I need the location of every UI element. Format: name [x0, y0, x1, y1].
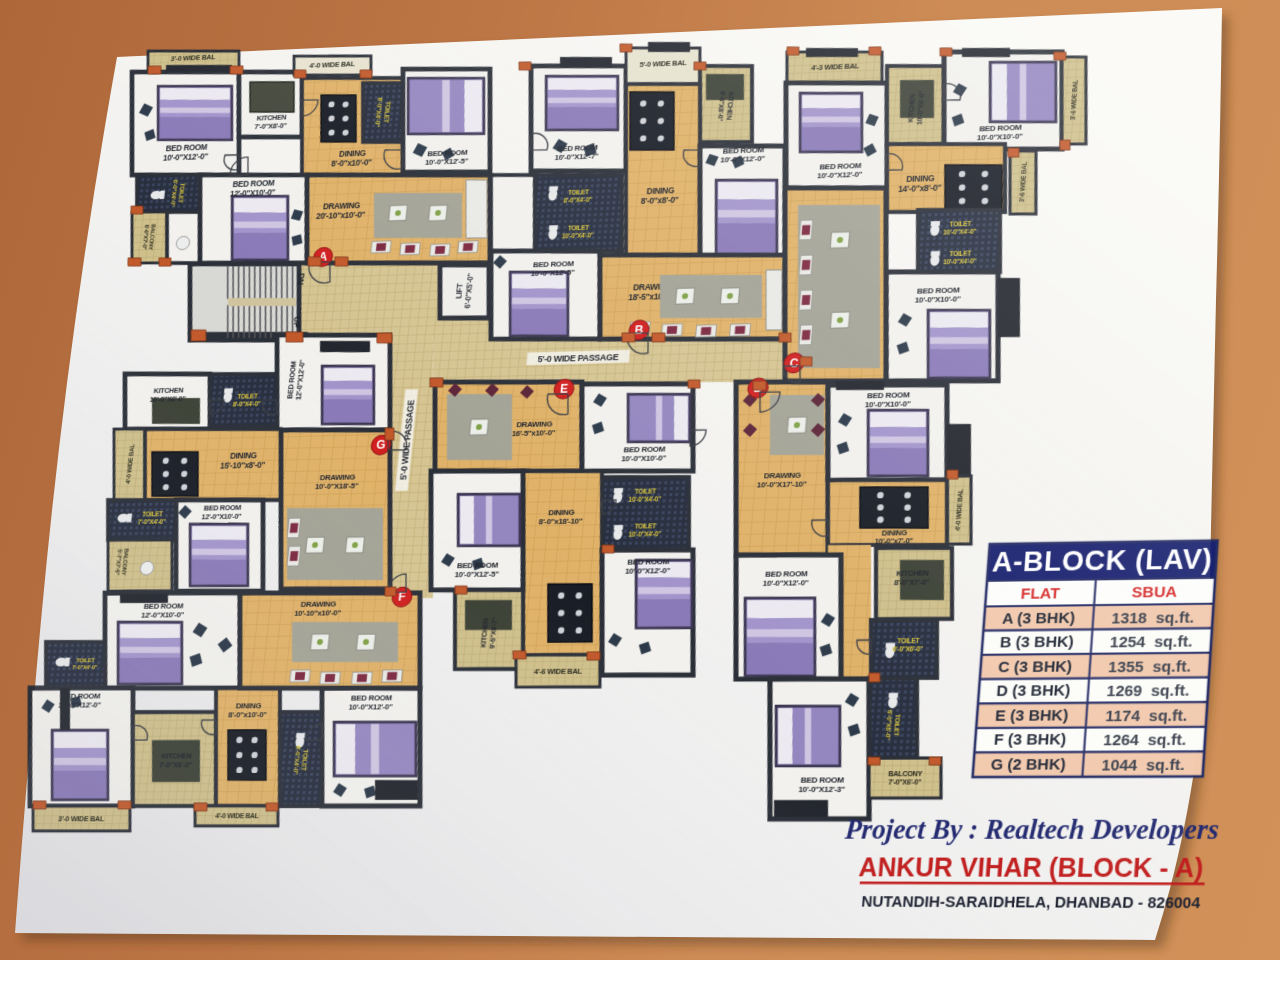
svg-text:8'-0"X7'-0": 8'-0"X7'-0" [894, 579, 930, 587]
svg-text:8'-0"x8'-0": 8'-0"x8'-0" [640, 196, 679, 207]
svg-text:D (3 BHK): D (3 BHK) [996, 681, 1071, 700]
svg-text:SBUA: SBUA [1131, 582, 1177, 601]
svg-text:7'-0"X4'-0": 7'-0"X4'-0" [137, 520, 166, 527]
svg-text:TOILET: TOILET [568, 190, 590, 197]
svg-text:10'-0"X12'-5": 10'-0"X12'-5" [454, 569, 499, 579]
svg-text:8'-0"X4'-0": 8'-0"X4'-0" [563, 197, 592, 204]
svg-text:15'-10"x8'-0": 15'-10"x8'-0" [220, 460, 266, 470]
svg-text:G (2 BHK): G (2 BHK) [990, 755, 1066, 773]
svg-text:10'-0"X4'-0": 10'-0"X4'-0" [943, 259, 977, 266]
svg-text:7'-0"X4'-0": 7'-0"X4'-0" [72, 665, 99, 672]
svg-text:DINING: DINING [881, 530, 907, 538]
svg-text:10'-0"X12'-7": 10'-0"X12'-7" [554, 151, 599, 162]
svg-text:TOILET: TOILET [897, 639, 920, 646]
svg-text:10'-0"X4'-0": 10'-0"X4'-0" [943, 229, 977, 237]
svg-text:TOILET: TOILET [634, 524, 656, 531]
svg-text:10'-0"X10'-0": 10'-0"X10'-0" [621, 453, 667, 464]
svg-text:10'-0"X4'-0": 10'-0"X4'-0" [628, 497, 661, 504]
svg-text:TOILET: TOILET [634, 489, 656, 496]
svg-text:A (3 BHK): A (3 BHK) [1002, 608, 1076, 627]
svg-text:20'-10"x10'-0": 20'-10"x10'-0" [316, 210, 366, 221]
svg-text:DN: DN [295, 273, 307, 285]
svg-text:10'-0"X12'-0": 10'-0"X12'-0" [348, 702, 393, 712]
svg-text:F (3 BHK): F (3 BHK) [993, 730, 1066, 748]
svg-text:5'-0 WIDE PASSAGE: 5'-0 WIDE PASSAGE [537, 352, 619, 365]
svg-text:KITCHEN: KITCHEN [153, 388, 184, 396]
svg-text:TOILET: TOILET [76, 658, 96, 665]
svg-text:1174 sq.ft.: 1174 sq.ft. [1105, 706, 1188, 725]
svg-text:TOILET: TOILET [568, 226, 590, 233]
svg-text:KITCHEN: KITCHEN [256, 114, 286, 122]
svg-text:TOILET: TOILET [237, 394, 258, 401]
svg-text:BED ROOM: BED ROOM [203, 505, 241, 513]
svg-text:10'-0"x7'-0": 10'-0"x7'-0" [874, 538, 913, 546]
svg-text:7'-0"X6'-0": 7'-0"X6'-0" [159, 762, 193, 770]
svg-text:10'-0"X10'-0": 10'-0"X10'-0" [914, 294, 961, 305]
svg-text:10'-0"X12'-0": 10'-0"X12'-0" [762, 577, 809, 588]
svg-text:10'-0"X12'-0": 10'-0"X12'-0" [720, 154, 765, 165]
svg-text:ANKUR VIHAR (BLOCK - A): ANKUR VIHAR (BLOCK - A) [858, 852, 1205, 884]
svg-text:TOILET: TOILET [949, 222, 972, 229]
svg-text:TOILET: TOILET [892, 714, 901, 737]
svg-text:10'-0"X6'-0": 10'-0"X6'-0" [149, 396, 186, 404]
svg-text:C: C [789, 357, 799, 370]
svg-text:7'-0"X6'-0": 7'-0"X6'-0" [888, 779, 922, 787]
svg-text:1318 sq.ft.: 1318 sq.ft. [1111, 608, 1195, 627]
svg-text:8'-0"x10'-0": 8'-0"x10'-0" [228, 710, 267, 720]
svg-text:8'-0"x10'-0": 8'-0"x10'-0" [331, 158, 373, 169]
svg-text:10'-0"X12'-0": 10'-0"X12'-0" [817, 169, 863, 180]
svg-text:FLAT: FLAT [1020, 584, 1061, 602]
svg-text:3'-0 WIDE BAL: 3'-0 WIDE BAL [58, 816, 105, 824]
svg-text:12'-0"X10'-0": 12'-0"X10'-0" [201, 513, 242, 521]
svg-text:10'-0"X12'-3": 10'-0"X12'-3" [798, 784, 845, 794]
svg-text:1269 sq.ft.: 1269 sq.ft. [1106, 681, 1190, 700]
svg-text:1044 sq.ft.: 1044 sq.ft. [1101, 755, 1185, 774]
svg-text:10'-0"X12'-0": 10'-0"X12'-0" [163, 151, 209, 162]
svg-text:DINING: DINING [230, 450, 258, 460]
svg-text:10'-0"X10'-0": 10'-0"X10'-0" [864, 399, 911, 410]
svg-text:8'-0"X4'-0": 8'-0"X4'-0" [232, 402, 261, 409]
svg-text:KITCHEN: KITCHEN [896, 570, 929, 578]
svg-text:8'-0"x18'-10": 8'-0"x18'-10" [538, 516, 582, 526]
svg-text:10'-0"X10'-0": 10'-0"X10'-0" [977, 131, 1023, 142]
svg-text:BALCONY: BALCONY [888, 771, 924, 779]
svg-text:UP: UP [291, 316, 303, 328]
svg-text:10'-0"X18'-5": 10'-0"X18'-5" [314, 481, 358, 491]
svg-text:10'-0"X12'-0": 10'-0"X12'-0" [625, 565, 671, 575]
svg-text:12'-0"X10'-0": 12'-0"X10'-0" [141, 609, 185, 619]
svg-text:4'-6 WIDE BAL: 4'-6 WIDE BAL [534, 668, 583, 676]
svg-text:1264 sq.ft.: 1264 sq.ft. [1103, 731, 1187, 750]
svg-text:KITCHEN: KITCHEN [161, 753, 192, 761]
svg-text:G: G [376, 439, 386, 452]
svg-text:14'-0"x8'-0": 14'-0"x8'-0" [898, 183, 943, 194]
svg-text:B (3 BHK): B (3 BHK) [1000, 632, 1075, 651]
svg-text:12'-0"X10'-0": 12'-0"X10'-0" [229, 187, 276, 198]
svg-text:6'-0"X6'-0": 6'-0"X6'-0" [892, 647, 923, 654]
svg-text:NUTANDIH-SARAIDHELA, DHANBAD -: NUTANDIH-SARAIDHELA, DHANBAD - 826004 [861, 893, 1201, 913]
svg-text:1254 sq.ft.: 1254 sq.ft. [1109, 632, 1193, 651]
svg-text:10'-0"X4'-0": 10'-0"X4'-0" [628, 532, 661, 539]
svg-text:E (3 BHK): E (3 BHK) [995, 706, 1069, 724]
svg-text:B: B [634, 324, 644, 337]
svg-text:Project By : Realtech Develope: Project By : Realtech Developers [843, 815, 1220, 846]
svg-text:10'-0"X4'-0": 10'-0"X4'-0" [561, 233, 594, 240]
svg-text:7'-0"X8'-0": 7'-0"X8'-0" [254, 123, 287, 131]
svg-text:TOILET: TOILET [142, 512, 163, 519]
svg-text:10'-0"X17'-10": 10'-0"X17'-10" [756, 479, 806, 490]
svg-text:A-BLOCK (LAV): A-BLOCK (LAV) [991, 544, 1213, 578]
svg-text:10'-0"X12'-5": 10'-0"X12'-5" [530, 267, 575, 278]
svg-text:10'-0"X12'-5": 10'-0"X12'-5" [425, 156, 469, 167]
svg-text:4'-0 WIDE BAL: 4'-0 WIDE BAL [215, 813, 259, 821]
svg-text:10'-10"x10'-0": 10'-10"x10'-0" [294, 607, 342, 617]
svg-text:16'-5"x10'-0": 16'-5"x10'-0" [512, 427, 556, 438]
svg-text:1355 sq.ft.: 1355 sq.ft. [1108, 657, 1192, 676]
svg-text:C (3 BHK): C (3 BHK) [998, 657, 1073, 676]
svg-text:TOILET: TOILET [949, 252, 972, 259]
